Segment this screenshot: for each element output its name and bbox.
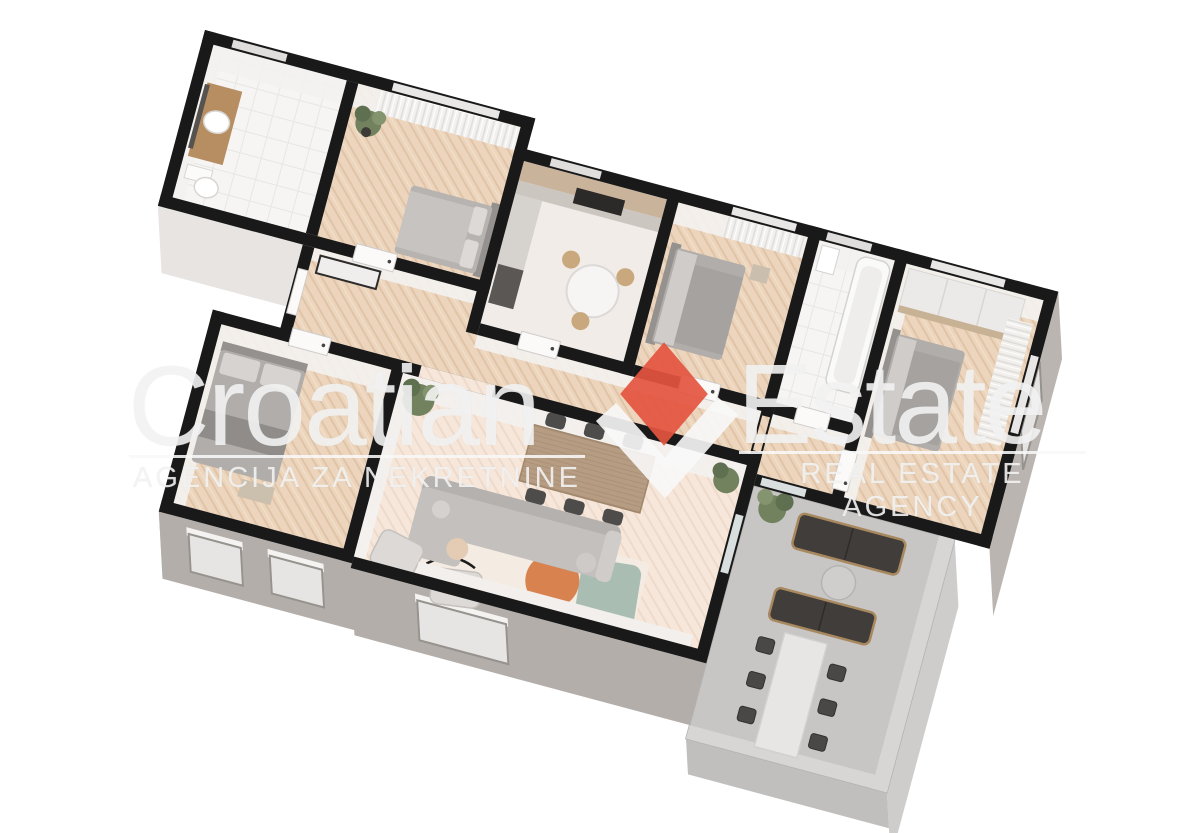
- watermark-tagline-right: REAL ESTATE AGENCY: [739, 458, 1086, 524]
- watermark-tagline-left: AGENCIJA ZA NEKRETNINE: [129, 462, 585, 495]
- watermark-brand-left: Croatian: [128, 350, 539, 463]
- watermark-brand-right: Estate: [737, 348, 1045, 461]
- floor-plan-screenshot: Croatian Estate AGENCIJA ZA NEKRETNINE R…: [0, 0, 1200, 833]
- watermark-rule-right: [739, 451, 1086, 454]
- watermark-rule-left: [129, 455, 585, 458]
